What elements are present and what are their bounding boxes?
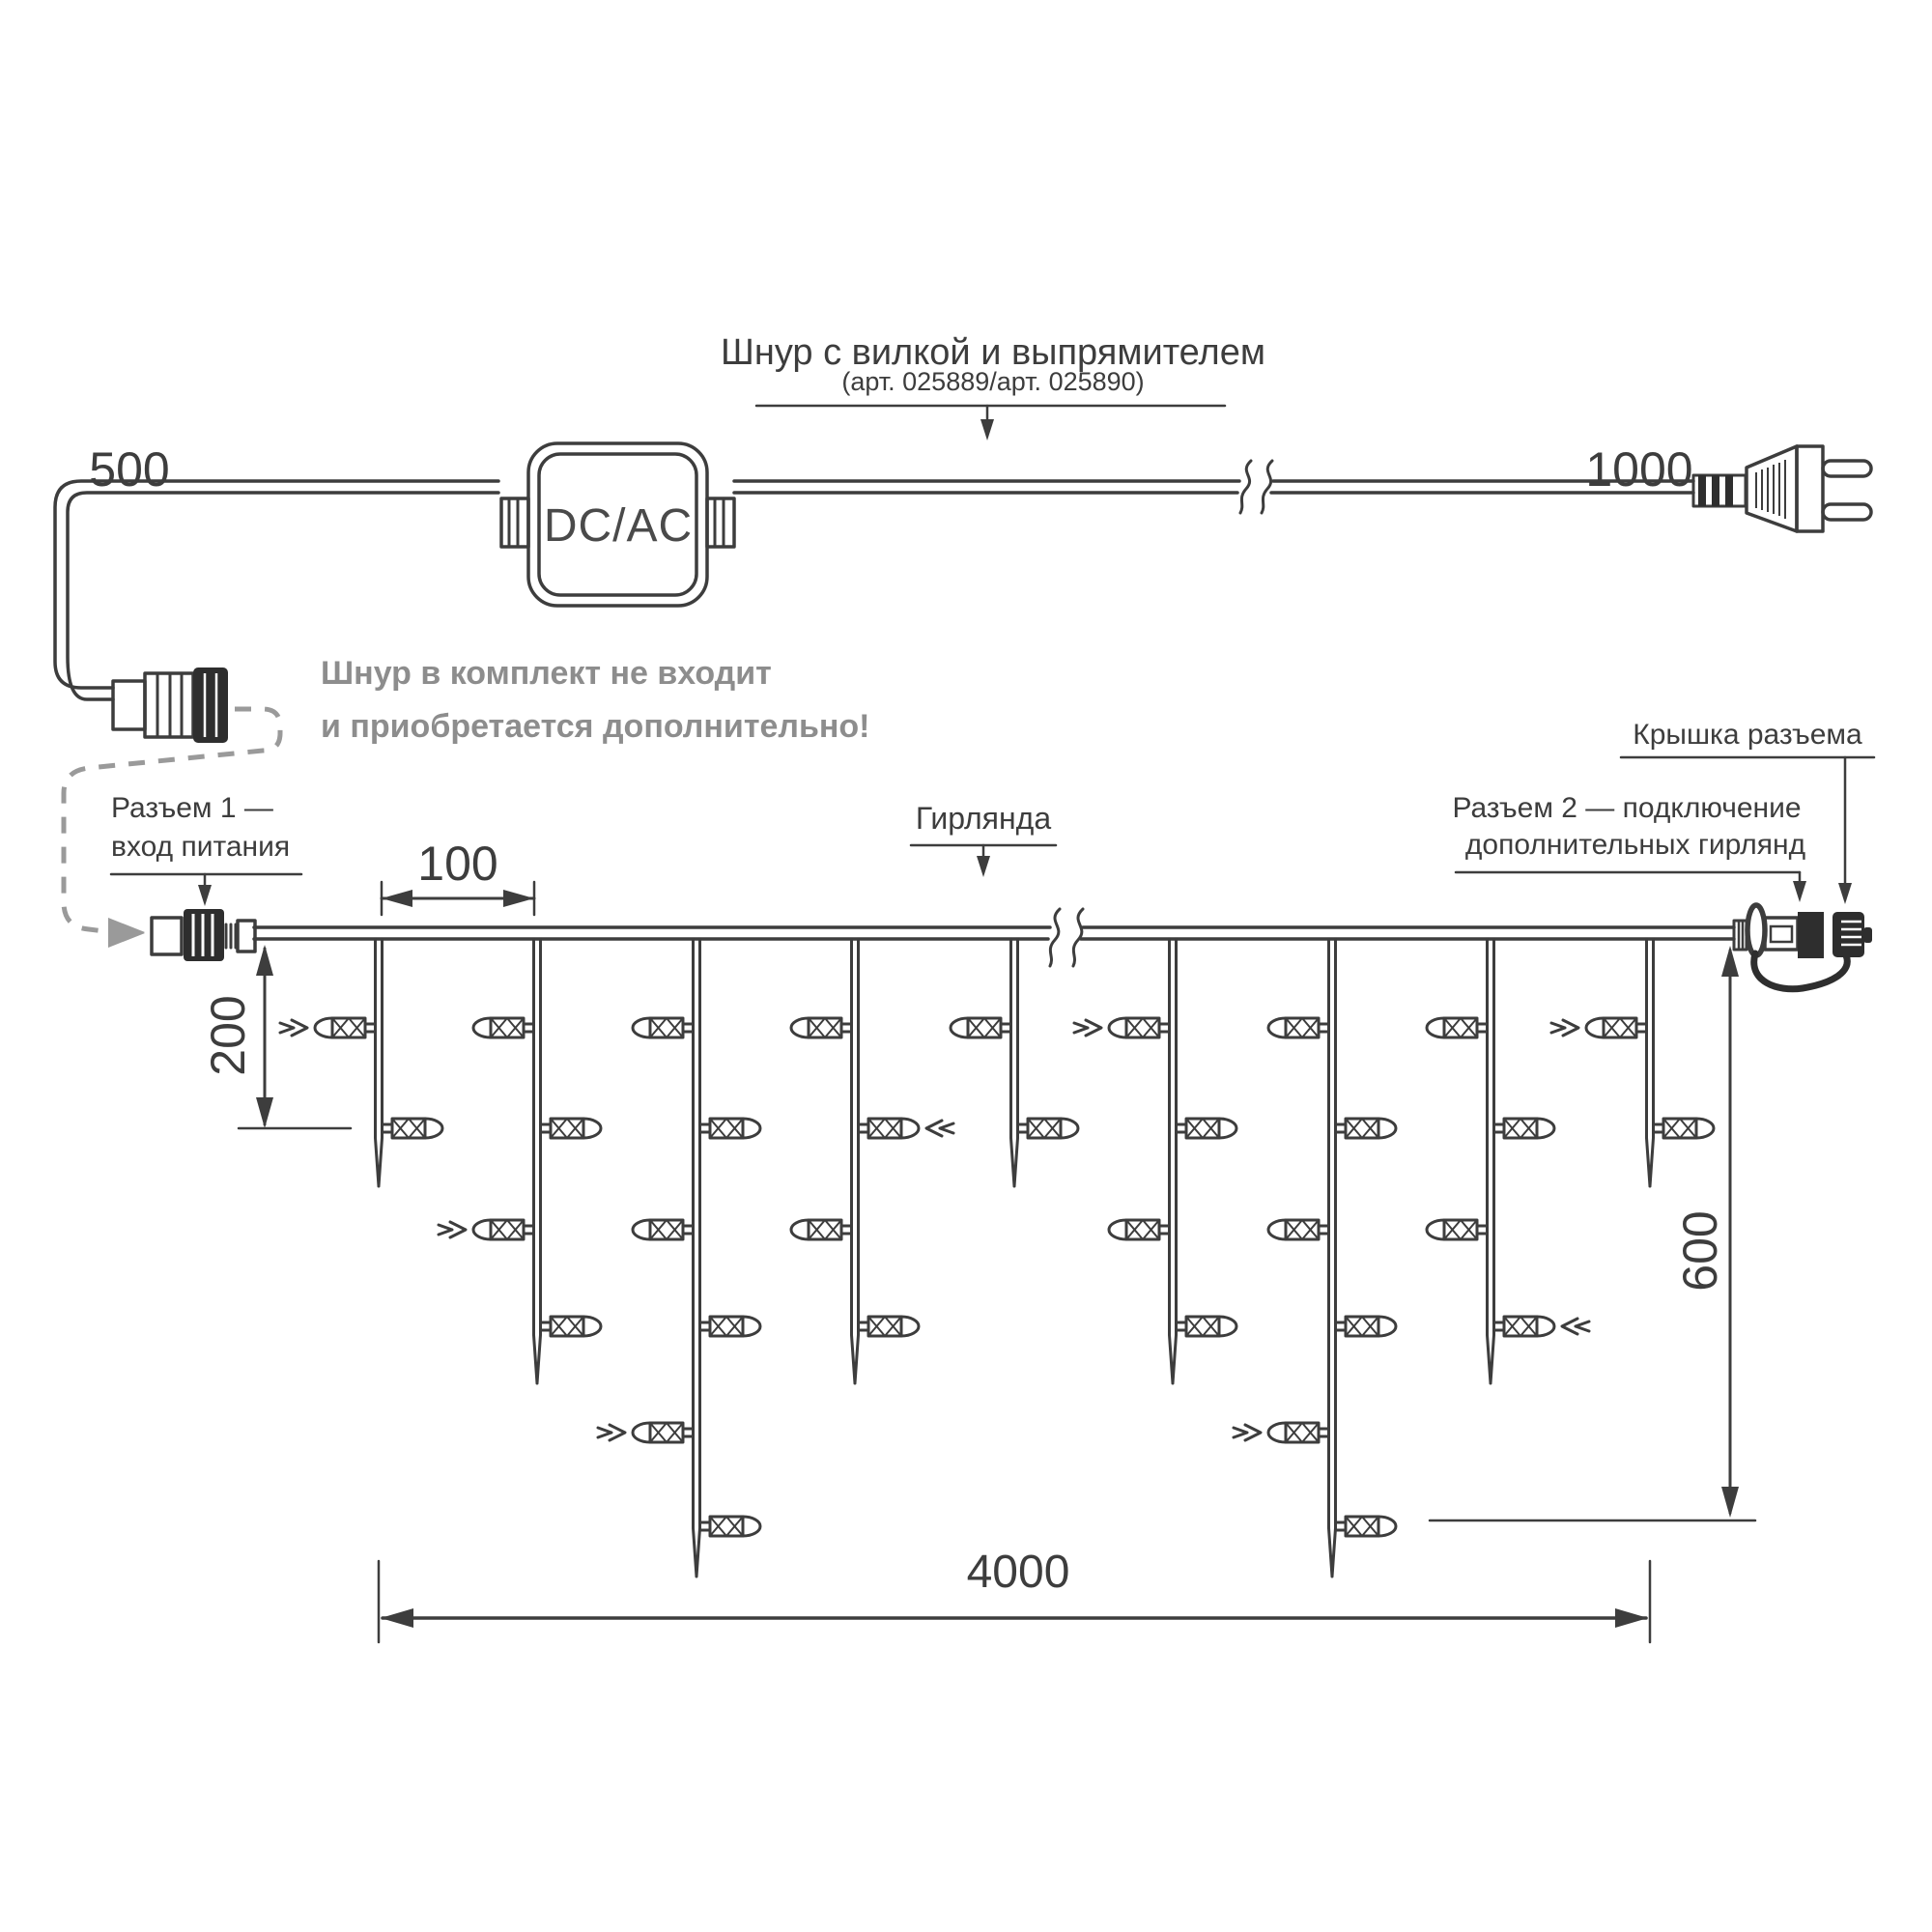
icicle-drops xyxy=(280,939,1714,1577)
bulb-stub xyxy=(365,1024,376,1032)
light-direction-arrow-icon xyxy=(598,1425,625,1440)
bulb-stub xyxy=(841,1226,852,1234)
bulb-stub xyxy=(859,1322,869,1330)
light-direction-arrow-icon xyxy=(926,1121,953,1136)
light-direction-arrow-icon xyxy=(280,1020,307,1036)
garland-arrow-icon xyxy=(977,856,990,877)
cap-label: Крышка разъема xyxy=(1633,719,1862,751)
bulb-stub xyxy=(1654,1124,1664,1132)
bulb-stub xyxy=(1319,1429,1329,1436)
bulb-stub xyxy=(1477,1024,1488,1032)
drop-wire xyxy=(1647,939,1654,1186)
cord-connector-icon xyxy=(113,668,228,743)
bulb-stub xyxy=(700,1124,711,1132)
connector1-callout: Разъем 1 — вход питания xyxy=(111,792,301,906)
connector-ring-icon xyxy=(1747,905,1765,955)
bulb-stub xyxy=(1001,1024,1011,1032)
dim-100-label: 100 xyxy=(417,837,497,891)
cap-tether-icon xyxy=(1754,953,1848,989)
connector2-callout: Разъем 2 — подключение дополнительных ги… xyxy=(1452,792,1806,902)
drop-wire xyxy=(1011,939,1018,1186)
bulb-stub xyxy=(1336,1322,1347,1330)
drop-wire xyxy=(1329,939,1336,1577)
light-direction-arrow-icon xyxy=(1562,1319,1589,1334)
bulb-stub xyxy=(541,1124,552,1132)
drop-wire xyxy=(534,939,541,1383)
bulb-stub xyxy=(524,1024,534,1032)
bulb-stub xyxy=(700,1522,711,1530)
cap-arrow-icon xyxy=(1838,883,1852,904)
dim-200-label: 200 xyxy=(201,995,255,1075)
dim-1000-label: 1000 xyxy=(1585,442,1692,497)
bulb-stub xyxy=(1177,1322,1187,1330)
bulb-stub xyxy=(1177,1124,1187,1132)
bulb-stub xyxy=(1494,1322,1505,1330)
light-direction-arrow-icon xyxy=(439,1222,466,1237)
cord-callout: Шнур с вилкой и выпрямителем (арт. 02588… xyxy=(721,332,1265,440)
dim-4000-label: 4000 xyxy=(967,1547,1070,1598)
dcac-converter-icon: DC/AC xyxy=(501,443,734,606)
light-direction-arrow-icon xyxy=(1551,1020,1578,1036)
dim-4000: 4000 xyxy=(379,1547,1650,1642)
connector1-label-line1: Разъем 1 — xyxy=(111,792,273,824)
cord-callout-arrow-icon xyxy=(980,419,994,440)
connector-cap-icon xyxy=(1833,912,1864,957)
bulb-stub xyxy=(1336,1124,1347,1132)
bulb-stub xyxy=(1494,1124,1505,1132)
bulb-stub xyxy=(683,1024,694,1032)
bulb-stub xyxy=(1636,1024,1647,1032)
bulb-stub xyxy=(1336,1522,1347,1530)
bulb-stub xyxy=(700,1322,711,1330)
dim-500-label: 500 xyxy=(89,442,169,497)
mains-plug-icon xyxy=(1693,446,1871,531)
bulb-stub xyxy=(1159,1226,1170,1234)
bulb-stub xyxy=(683,1429,694,1436)
dim-600-label: 600 xyxy=(1673,1210,1727,1291)
light-direction-arrow-icon xyxy=(1074,1020,1101,1036)
connector2-arrow-icon xyxy=(1793,881,1806,902)
cord-right-segment xyxy=(734,461,1693,513)
bulb-stub xyxy=(1319,1226,1329,1234)
drop-wire xyxy=(1170,939,1177,1383)
connector1-label-line2: вход питания xyxy=(111,831,290,863)
bulb-stub xyxy=(524,1226,534,1234)
cord-break-icon xyxy=(1240,461,1272,513)
bulb-stub xyxy=(1159,1024,1170,1032)
drop-wire xyxy=(852,939,859,1383)
drop-wire xyxy=(1488,939,1494,1383)
note-line2: и приобретается дополнительно! xyxy=(321,708,870,745)
dim-100: 100 xyxy=(382,837,534,915)
power-in-arrow-icon xyxy=(108,919,145,948)
garland-section: Разъем 1 — вход питания 100 200 Гирлянда xyxy=(108,719,1874,1642)
light-direction-arrow-icon xyxy=(1234,1425,1261,1440)
note-line1: Шнур в комплект не входит xyxy=(321,655,772,692)
drop-wire xyxy=(694,939,700,1577)
bulb-stub xyxy=(1319,1024,1329,1032)
bulb-stub xyxy=(683,1226,694,1234)
wire-break-icon xyxy=(1050,909,1083,966)
connector2-label-line2: дополнительных гирлянд xyxy=(1465,829,1805,861)
dcac-label: DC/AC xyxy=(544,500,693,552)
connector1-icon xyxy=(108,909,255,961)
bulb-stub xyxy=(541,1322,552,1330)
connector2-icon xyxy=(1734,905,1872,989)
bulb-stub xyxy=(1018,1124,1029,1132)
bulb-stub xyxy=(841,1024,852,1032)
connector1-arrow-icon xyxy=(198,885,212,906)
drop-wire xyxy=(376,939,383,1186)
garland-main-wire xyxy=(254,909,1734,966)
bulb-stub xyxy=(859,1124,869,1132)
garland-label: Гирлянда xyxy=(916,801,1051,836)
garland-wiring-diagram: 500 Шнур в комплект не входит и приобрет… xyxy=(0,0,1932,1932)
diagram-page: 500 Шнур в комплект не входит и приобрет… xyxy=(0,0,1932,1932)
cord-subtitle: (арт. 025889/арт. 025890) xyxy=(841,367,1144,396)
bulb-stub xyxy=(1477,1226,1488,1234)
bulb-stub xyxy=(383,1124,393,1132)
garland-callout: Гирлянда xyxy=(911,801,1056,877)
connector2-label-line1: Разъем 2 — подключение xyxy=(1452,792,1801,824)
